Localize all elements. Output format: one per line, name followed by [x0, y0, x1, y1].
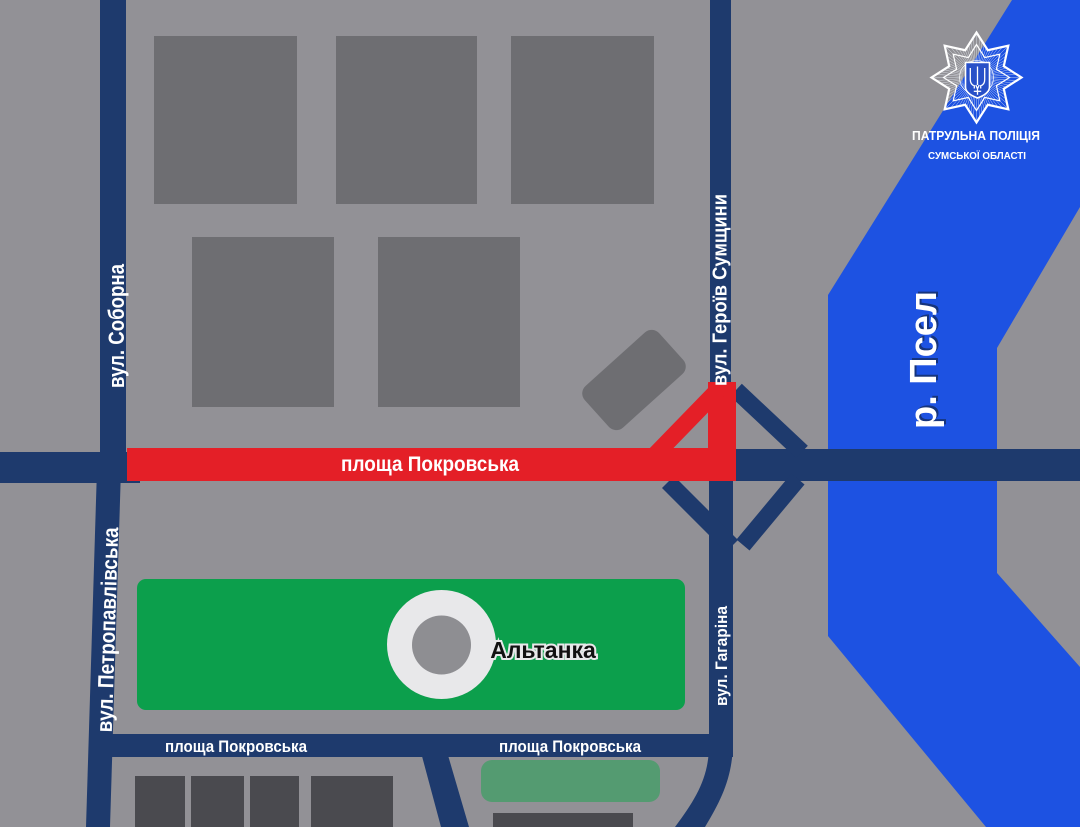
svg-text:вул. Героїв Сумщини: вул. Героїв Сумщини [710, 194, 732, 386]
svg-text:вул. Гагаріна: вул. Гагаріна [712, 606, 731, 706]
svg-text:ПАТРУЛЬНА ПОЛІЦІЯ: ПАТРУЛЬНА ПОЛІЦІЯ [912, 128, 1040, 143]
svg-text:Альтанка: Альтанка [490, 637, 596, 663]
svg-text:вул. Соборна: вул. Соборна [104, 263, 129, 388]
svg-text:площа Покровська: площа Покровська [341, 453, 519, 476]
svg-text:р. Псел: р. Псел [903, 291, 945, 429]
svg-text:площа Покровська: площа Покровська [499, 737, 641, 756]
svg-text:площа Покровська: площа Покровська [165, 737, 307, 756]
svg-text:СУМСЬКОЇ ОБЛАСТІ: СУМСЬКОЇ ОБЛАСТІ [928, 149, 1026, 162]
